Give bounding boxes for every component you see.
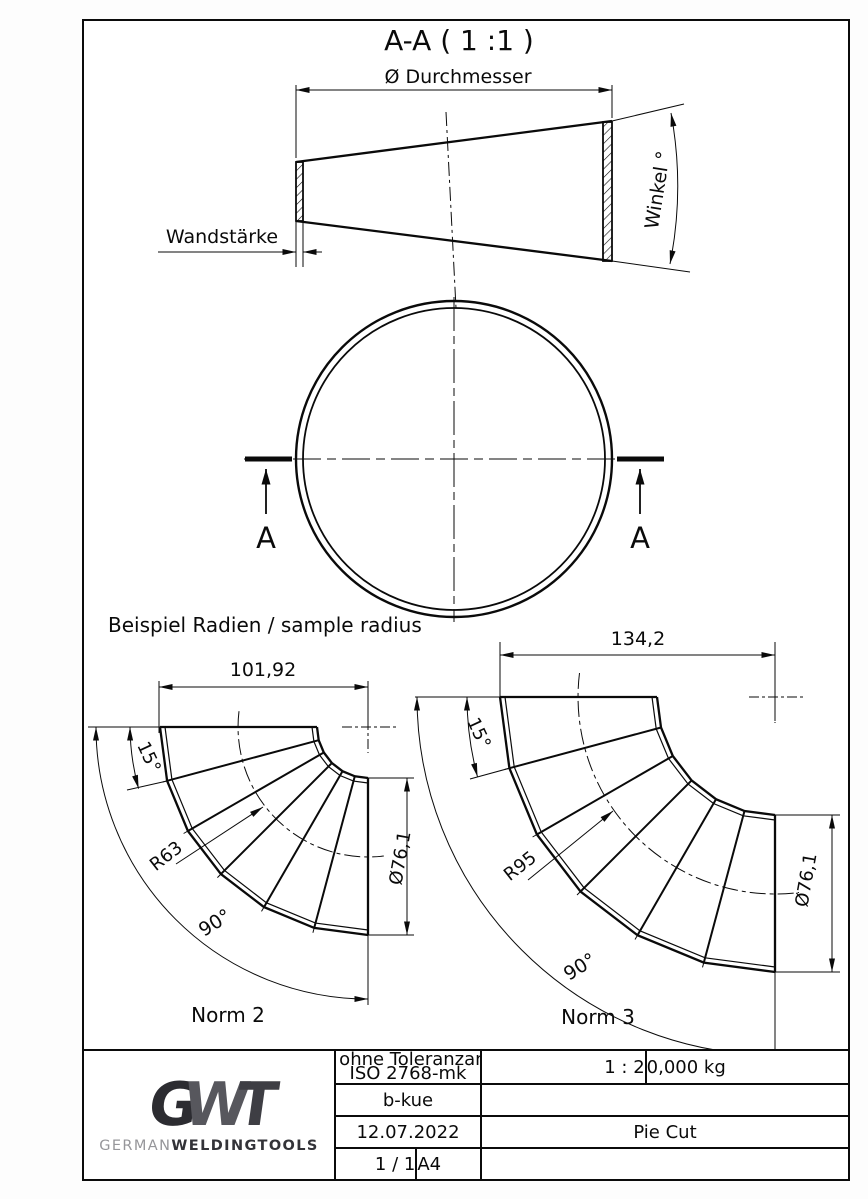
cone-wall-right-hatch bbox=[603, 122, 612, 261]
title-block: GWT GERMANWELDINGTOOLS Maße ohne Toleran… bbox=[82, 1049, 850, 1181]
empty-field-1 bbox=[480, 1083, 848, 1115]
sheet-format-row: 1 / 1 A4 bbox=[334, 1147, 480, 1179]
cone-bottom-edge bbox=[296, 221, 612, 261]
sheet-number: 1 / 1 bbox=[375, 1149, 415, 1179]
cone-section-view: Ø Durchmesser Wandstärke Winkel ° bbox=[158, 66, 690, 308]
angle-dimension-arc bbox=[670, 113, 678, 264]
circle-top-view: A A bbox=[244, 297, 664, 622]
part-title: Pie Cut bbox=[480, 1115, 848, 1147]
norm2-view: 101,92 bbox=[88, 659, 416, 1027]
samples-heading: Beispiel Radien / sample radius bbox=[108, 613, 422, 637]
norm2-width-dimension: 101,92 bbox=[230, 659, 296, 681]
norm3-view: 134,2 bbox=[415, 628, 840, 1060]
norm2-name: Norm 2 bbox=[191, 1003, 265, 1027]
scale-weight-row: 1 : 2 0,000 kg bbox=[480, 1051, 848, 1083]
norm2-segment-joints bbox=[167, 740, 355, 928]
norm3-bend-radius-label: R95 bbox=[500, 847, 541, 885]
angle-dimension-label: Winkel ° bbox=[641, 149, 675, 230]
date-field: 12.07.2022 bbox=[334, 1115, 480, 1147]
drawing-canvas: A-A ( 1 :1 ) Ø Durchmesser Wandstärke bbox=[0, 0, 868, 1199]
cone-wall-left-hatch bbox=[296, 162, 303, 221]
paper-format: A4 bbox=[415, 1149, 441, 1179]
norm3-width-dimension: 134,2 bbox=[611, 628, 665, 650]
norm2-radius-leader bbox=[176, 807, 263, 864]
norm3-sweep-angle-label: 90° bbox=[560, 949, 600, 986]
norm2-tube-diameter-label: Ø76,1 bbox=[385, 830, 415, 887]
section-mark-left: A bbox=[256, 521, 276, 555]
weight-value: 0,000 kg bbox=[645, 1051, 726, 1083]
section-mark-right: A bbox=[630, 521, 650, 555]
scale-value: 1 : 2 bbox=[604, 1051, 644, 1083]
cone-top-edge bbox=[296, 121, 612, 162]
norm3-name: Norm 3 bbox=[561, 1005, 635, 1029]
section-view-title: A-A ( 1 :1 ) bbox=[384, 24, 534, 57]
norm3-tube-diameter-label: Ø76,1 bbox=[791, 852, 821, 909]
author-field: b-kue bbox=[334, 1083, 480, 1115]
norm2-sweep-angle-label: 90° bbox=[195, 905, 235, 942]
diameter-dimension-label: Ø Durchmesser bbox=[384, 66, 531, 88]
norm2-segment-angle-label: 15° bbox=[132, 738, 165, 776]
tolerance-note: Maße ohne Toleranzangabe ISO 2768-mk bbox=[334, 1051, 480, 1083]
norm2-bend-radius-label: R63 bbox=[146, 837, 187, 875]
empty-field-2 bbox=[480, 1147, 848, 1179]
company-wordmark: GERMANWELDINGTOOLS bbox=[99, 1138, 319, 1154]
company-logo: GWT GERMANWELDINGTOOLS bbox=[84, 1051, 334, 1179]
norm3-segment-angle-label: 15° bbox=[462, 714, 495, 752]
wall-thickness-label: Wandstärke bbox=[166, 226, 278, 248]
engineering-drawing-sheet: A-A ( 1 :1 ) Ø Durchmesser Wandstärke bbox=[0, 0, 868, 1199]
gwt-logo-icon: GWT bbox=[145, 1076, 273, 1134]
